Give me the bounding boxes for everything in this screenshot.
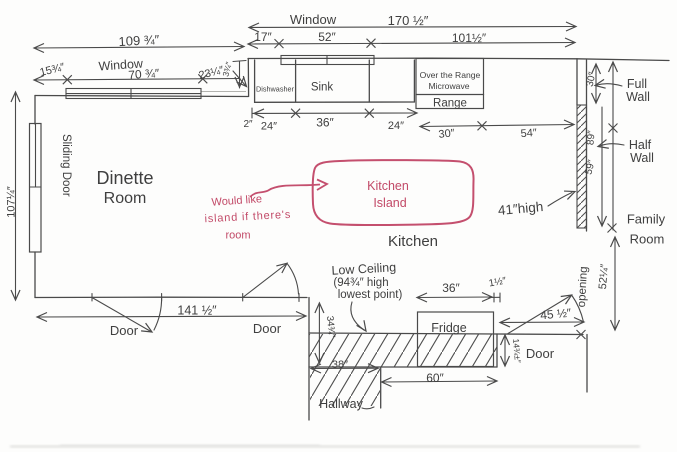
- svg-text:Wall: Wall: [626, 90, 650, 104]
- svg-text:Range: Range: [433, 98, 467, 110]
- svg-text:Room: Room: [104, 190, 147, 207]
- svg-text:Hallway: Hallway: [319, 397, 364, 411]
- svg-text:(94¾″ high: (94¾″ high: [333, 277, 388, 289]
- svg-text:Half: Half: [629, 138, 652, 152]
- svg-text:70 ¾″: 70 ¾″: [128, 66, 161, 82]
- svg-text:24″: 24″: [261, 121, 277, 133]
- svg-text:14¾±″: 14¾±″: [511, 338, 523, 363]
- svg-text:Family: Family: [627, 212, 666, 227]
- svg-text:lowest point): lowest point): [338, 289, 403, 301]
- svg-text:Wall: Wall: [630, 151, 654, 165]
- svg-text:Room: Room: [630, 232, 665, 247]
- svg-text:Door: Door: [253, 321, 282, 336]
- svg-text:Sliding Door: Sliding Door: [60, 134, 72, 197]
- svg-text:109 ¾″: 109 ¾″: [118, 32, 160, 49]
- svg-text:Kitchen: Kitchen: [388, 233, 438, 250]
- svg-text:Dinette: Dinette: [96, 168, 153, 188]
- svg-text:24″: 24″: [388, 120, 404, 132]
- svg-text:Dishwasher: Dishwasher: [256, 85, 295, 94]
- svg-text:45 ½″: 45 ½″: [540, 306, 573, 323]
- svg-text:Kitchen: Kitchen: [367, 179, 409, 193]
- svg-text:Microwave: Microwave: [428, 81, 469, 91]
- svg-text:101½″: 101½″: [452, 31, 487, 45]
- svg-text:52″: 52″: [318, 30, 336, 44]
- svg-text:36″: 36″: [442, 281, 460, 295]
- svg-text:52¼″: 52¼″: [597, 264, 611, 290]
- svg-text:Door: Door: [526, 346, 555, 361]
- svg-text:141 ½″: 141 ½″: [177, 304, 217, 318]
- svg-text:60″: 60″: [426, 371, 444, 385]
- svg-text:Window: Window: [290, 12, 337, 27]
- svg-text:38″: 38″: [332, 359, 348, 371]
- svg-text:89″: 89″: [585, 130, 597, 146]
- svg-text:170 ½″: 170 ½″: [388, 13, 429, 28]
- svg-text:Full: Full: [627, 77, 647, 91]
- svg-text:30″: 30″: [438, 127, 455, 141]
- svg-text:34¾″: 34¾″: [324, 315, 337, 338]
- svg-text:17″: 17″: [254, 30, 272, 44]
- svg-text:107¼″: 107¼″: [6, 186, 18, 218]
- svg-text:Fridge: Fridge: [431, 321, 466, 335]
- svg-text:opening: opening: [576, 266, 590, 308]
- svg-text:36″: 36″: [316, 116, 334, 130]
- svg-text:54″: 54″: [520, 127, 537, 140]
- svg-text:room: room: [225, 230, 250, 242]
- svg-text:Sink: Sink: [311, 82, 334, 94]
- svg-text:Over the Range: Over the Range: [420, 70, 481, 80]
- svg-text:Island: Island: [373, 196, 406, 210]
- svg-text:Door: Door: [110, 323, 139, 338]
- svg-text:2″: 2″: [243, 119, 253, 130]
